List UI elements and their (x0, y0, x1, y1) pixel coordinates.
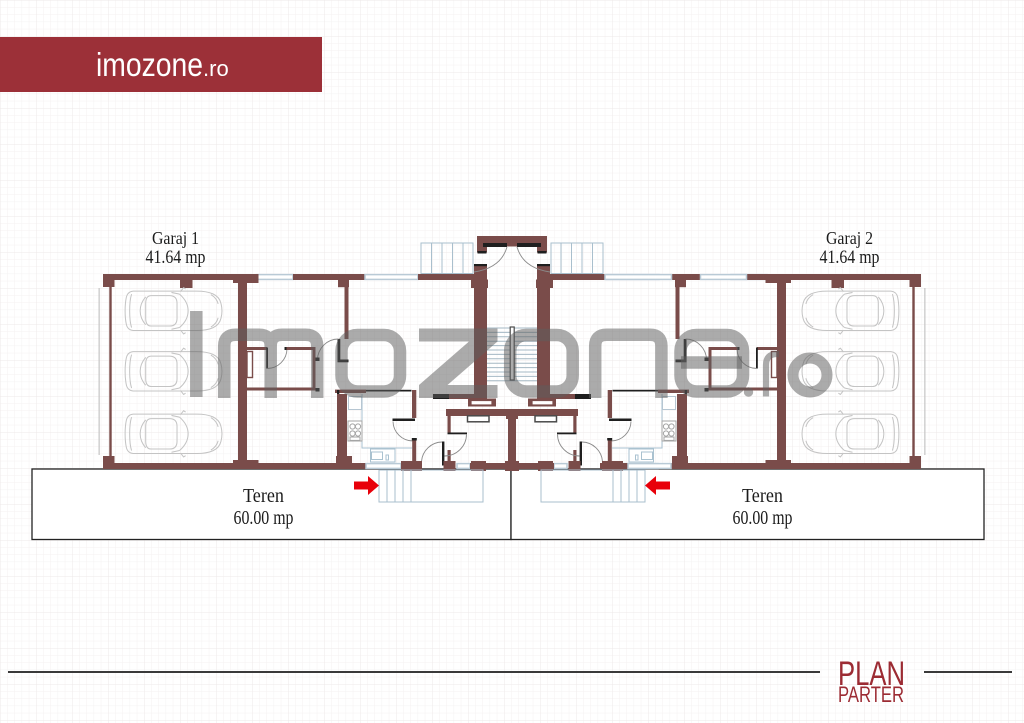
svg-text:41.64 mp: 41.64 mp (820, 248, 880, 268)
svg-text:PARTER: PARTER (838, 682, 904, 707)
svg-text:Teren: Teren (243, 486, 284, 507)
svg-text:Garaj 1: Garaj 1 (152, 228, 199, 248)
svg-text:60.00 mp: 60.00 mp (733, 508, 793, 529)
svg-text:41.64 mp: 41.64 mp (146, 248, 206, 268)
svg-text:60.00 mp: 60.00 mp (234, 508, 294, 529)
svg-text:Teren: Teren (742, 486, 783, 507)
svg-text:Garaj 2: Garaj 2 (826, 228, 873, 248)
